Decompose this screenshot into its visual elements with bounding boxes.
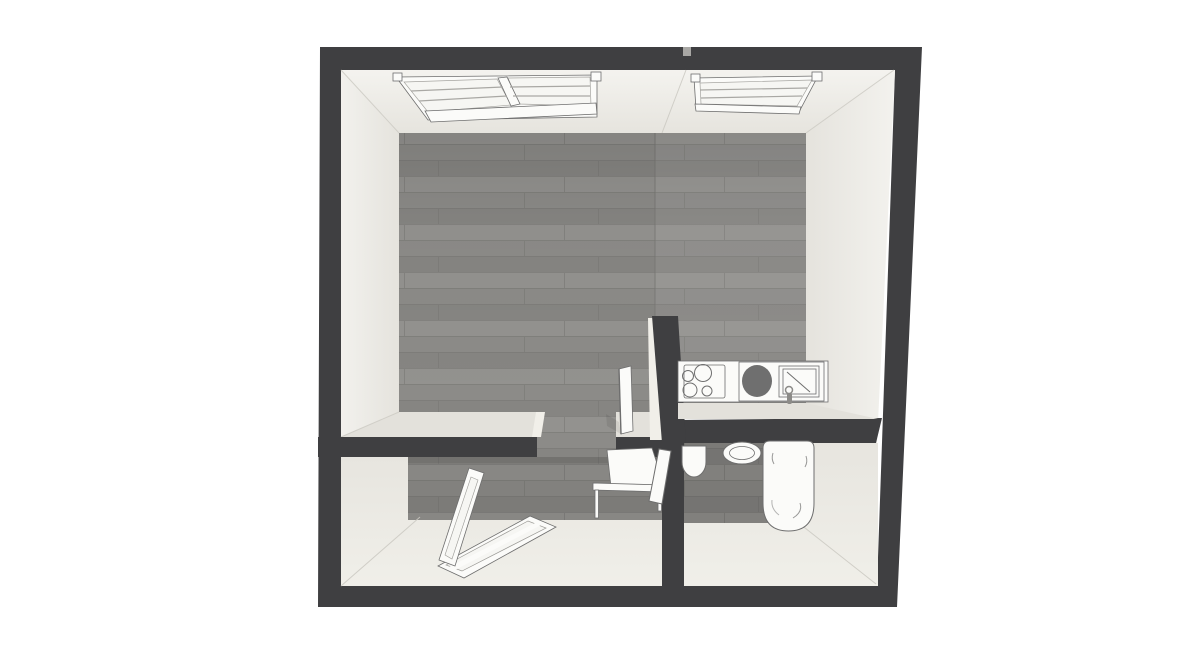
mid-wall-right (678, 418, 882, 443)
floorplan-canvas (0, 0, 1200, 650)
doorway-threshold-wood (537, 412, 616, 457)
bathroom (682, 441, 878, 586)
floorplan-viewport (0, 0, 1200, 650)
washbasin-round (723, 442, 761, 464)
sink-bowl (779, 366, 819, 397)
roof-window-double (393, 72, 601, 122)
cooktop-4-burner (683, 365, 726, 399)
table-leg (595, 490, 599, 518)
west-wall-face (341, 70, 399, 437)
toilet (682, 446, 706, 477)
kitchen-sink (739, 362, 824, 404)
wall-joint-notch (683, 47, 691, 56)
window-glass (700, 80, 812, 106)
bathtub (763, 441, 814, 531)
bottom-left-room (341, 448, 671, 586)
window-endcap (691, 74, 700, 82)
window-endcap-2 (591, 72, 601, 81)
window-glass-right (508, 77, 591, 106)
mid-wall-left (318, 437, 537, 457)
window-endcap (393, 73, 402, 81)
window-endcap-2 (812, 72, 822, 81)
sink-basin (742, 365, 772, 397)
